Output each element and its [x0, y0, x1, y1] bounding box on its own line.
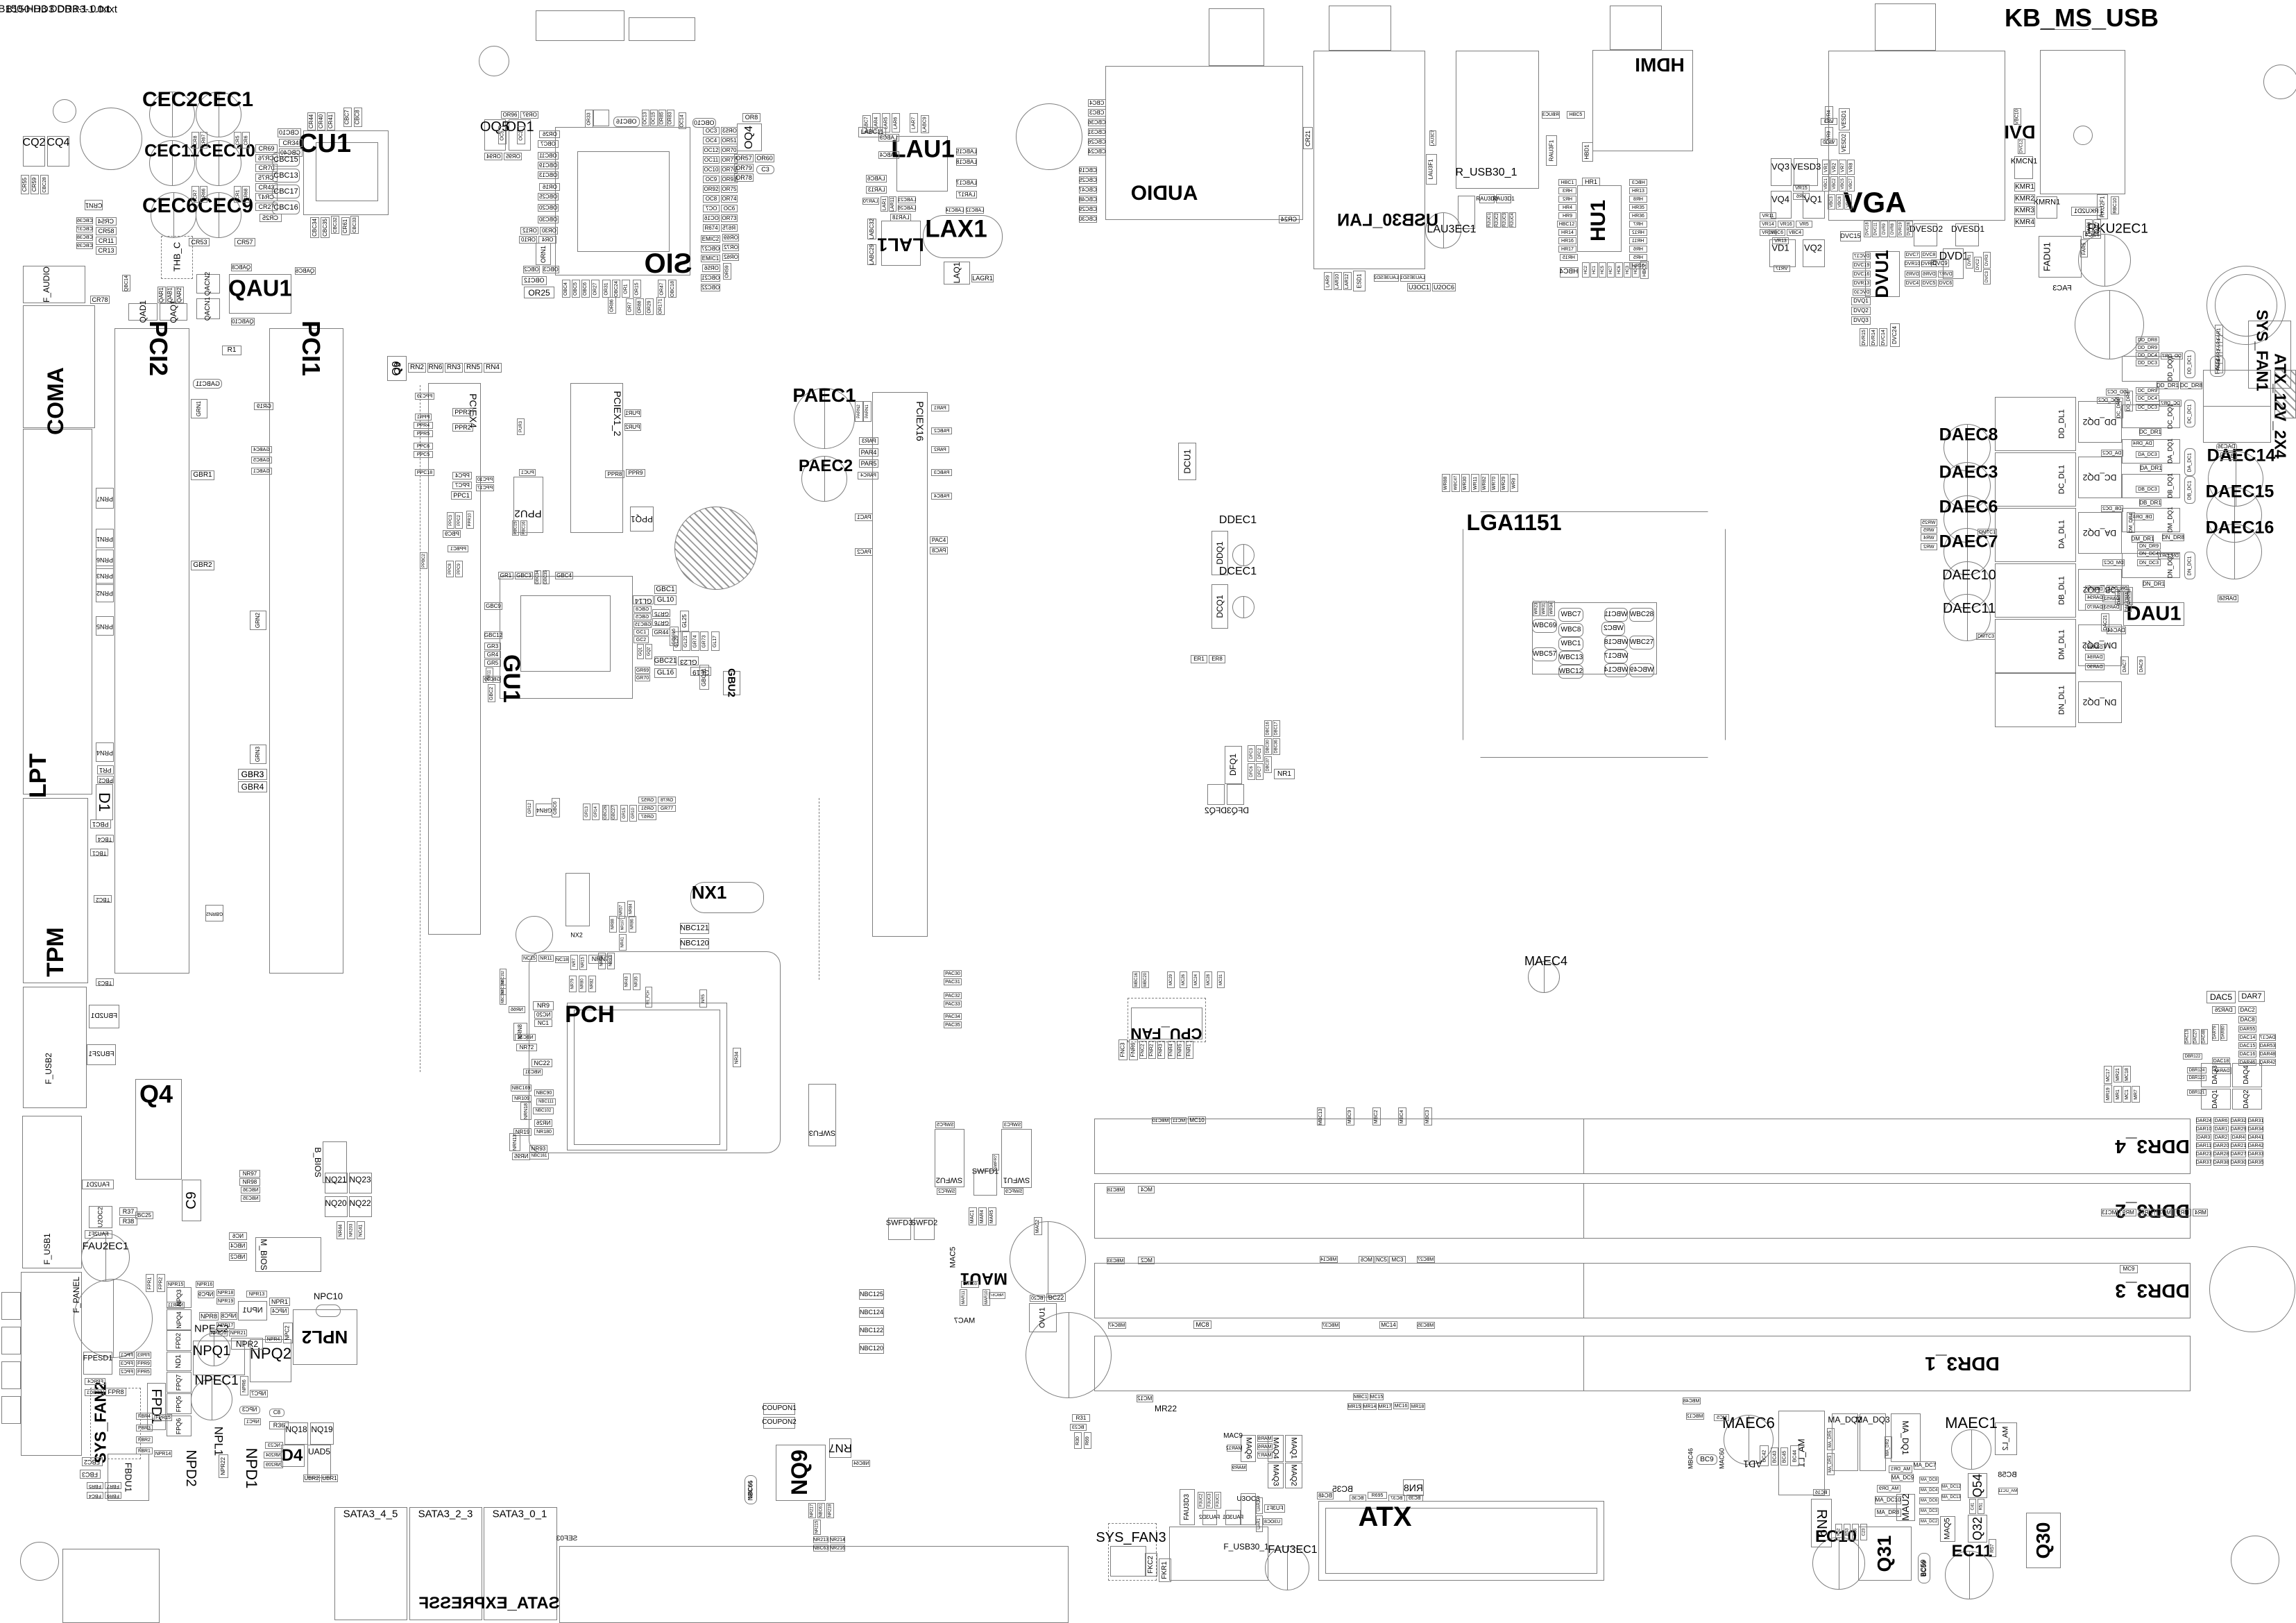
refdes-text: MBC18	[1107, 1188, 1123, 1193]
refdes-fnr2: FNR2	[1148, 1041, 1156, 1059]
refdes-text: C23	[1862, 1528, 1866, 1536]
label-npc10: NPC10	[314, 1292, 343, 1301]
refdes-dac15: DAC15	[2238, 1042, 2256, 1049]
refdes-mc9: MC9	[2120, 1265, 2138, 1273]
label-dc-dq1: DC_DQ1	[2168, 404, 2174, 430]
refdes-text: NPR17	[218, 1323, 234, 1328]
refdes-gbc2: GBC2	[488, 684, 495, 702]
refdes-text: OR97	[522, 112, 537, 118]
refdes-text: HR36	[1632, 214, 1644, 219]
capacitor-polarity-line	[2104, 235, 2105, 286]
label-f-audio: F_AUDIO	[42, 266, 51, 303]
refdes-or27: OR27	[591, 280, 599, 298]
refdes-text: NPR19	[218, 1299, 234, 1304]
refdes-cbc33: CBC33	[350, 216, 359, 234]
refdes-text: FNR2	[1150, 1044, 1155, 1056]
refdes-rn5: RN5	[464, 363, 482, 373]
refdes-text: LAGR1	[972, 275, 993, 282]
refdes-text: VESD2	[1842, 134, 1847, 152]
refdes-text: DVC4	[1906, 281, 1919, 286]
refdes-pur3: PUR3	[517, 418, 525, 435]
label-bc58: BC58	[1998, 1472, 2017, 1479]
refdes-npr21: NPR21	[229, 1329, 247, 1336]
refdes-cr67: CR67	[200, 132, 207, 148]
refdes-fpd2: FPD2	[167, 1330, 192, 1351]
refdes-cbc17: CBC17	[272, 185, 300, 198]
refdes-text: NBC34	[518, 1035, 534, 1040]
refdes-dar94: DAR94	[2085, 594, 2104, 601]
refdes-text: NPR4	[267, 1337, 280, 1342]
refdes-u3oc8: U3OC8	[1263, 1518, 1282, 1525]
refdes-hr35: HR35	[1629, 204, 1647, 211]
outline-box	[566, 873, 590, 926]
refdes-obc18: OBC18	[668, 280, 677, 298]
label-mr22: MR22	[1155, 1404, 1177, 1413]
refdes-text: DAC17	[2260, 1035, 2276, 1040]
refdes-text: BC16	[1815, 1490, 1828, 1495]
refdes-dbc16: DBC16	[1264, 720, 1272, 737]
refdes-obc27: OBC27	[701, 245, 720, 253]
refdes-prn7: PRN7	[96, 488, 114, 509]
refdes-text: R53	[1845, 1528, 1849, 1536]
refdes-text: DD_DR9	[2138, 346, 2157, 350]
refdes-vesd2: VESD2	[1839, 132, 1850, 154]
refdes-par2: PAR2	[931, 446, 949, 453]
refdes-nc20: NC20	[534, 1011, 552, 1019]
label-maec4: MAEC4	[1524, 955, 1567, 967]
refdes-text: HC2	[1584, 266, 1588, 274]
refdes-dac2: DAC2	[2238, 1006, 2256, 1014]
refdes-text: CR59	[32, 178, 37, 192]
outline-box	[23, 987, 87, 1108]
refdes-text: MC1	[2125, 1089, 2129, 1100]
refdes-text: OBC4	[564, 282, 569, 295]
refdes-qabc6: QABC6	[295, 267, 316, 275]
refdes-text: HBC5	[1570, 112, 1583, 117]
label-ovu1: OVU1	[1039, 1307, 1047, 1328]
refdes-text: DAR41	[2248, 1135, 2264, 1140]
refdes-nrn18: NRN18	[520, 1102, 532, 1120]
refdes-text: HR7	[1633, 222, 1643, 227]
mounting-hole-circle	[516, 916, 553, 953]
refdes-hr17: HR17	[1558, 246, 1576, 253]
refdes-vr14: VR14	[1760, 221, 1776, 228]
refdes-ppc10: PPC10	[476, 476, 494, 483]
refdes-text: CR6	[244, 135, 248, 145]
refdes-text: MBC2	[1375, 1110, 1379, 1123]
refdes-or92: OR92	[703, 185, 720, 193]
refdes-gbc31: GBC31	[699, 665, 709, 690]
refdes-r675: R675	[721, 224, 738, 232]
refdes-text: CR61	[343, 219, 348, 233]
label-dcq1: DCQ1	[1216, 595, 1224, 618]
refdes-text: NR218	[828, 1504, 833, 1518]
refdes-text: GR1	[500, 573, 511, 579]
refdes-mbc4: MBC4	[1398, 1107, 1406, 1125]
refdes-mbc35: MBC35	[1417, 1322, 1435, 1329]
refdes-text: DN_DR7	[2159, 554, 2179, 559]
refdes-text: PPR4	[417, 423, 430, 428]
refdes-nr15: NR15	[579, 955, 587, 970]
refdes-text: NPR1	[271, 1299, 288, 1305]
refdes-dar70: DAR70	[2085, 604, 2104, 611]
refdes-text: VR14	[1762, 222, 1774, 227]
refdes-dar93: DAR93	[2125, 587, 2133, 605]
refdes-text: NR180	[536, 1130, 552, 1135]
refdes-or171: OR171	[656, 297, 665, 315]
label-c9: C9	[185, 1191, 198, 1209]
label-mbc46: MBC46	[1688, 1448, 1694, 1469]
refdes-text: BC48	[1318, 1493, 1332, 1499]
label-m-bios: M_BIOS	[260, 1239, 268, 1270]
refdes-text: OC8	[706, 196, 717, 202]
refdes-gr14: GR14	[592, 804, 599, 820]
refdes-text: NR86	[631, 919, 635, 929]
refdes-text: MAR10	[985, 1291, 989, 1305]
refdes-nr217: NR217	[808, 1503, 816, 1518]
refdes-text: GL10	[657, 597, 674, 604]
refdes-dc-dr7: DC_DR7	[2159, 400, 2182, 407]
refdes-or10: OR10	[519, 236, 537, 244]
label-fau3d2: FAU3D2	[1199, 1515, 1220, 1520]
refdes-text: CRN1	[85, 202, 103, 208]
refdes-text: OR31	[604, 282, 609, 295]
label-dau1: DAU1	[2127, 604, 2182, 624]
refdes-text: WBC1	[1561, 640, 1581, 647]
refdes-text: FPR15	[155, 1416, 171, 1420]
refdes-text: VR10	[1823, 140, 1835, 145]
refdes-text: NR9	[537, 1003, 550, 1009]
refdes-ma-dr1: MA_DR1	[1889, 1465, 1912, 1473]
refdes-text: HBD1	[1585, 144, 1590, 159]
refdes-nbc34: NBC34	[515, 1034, 536, 1041]
refdes-dac18: DAC18	[2212, 1057, 2230, 1064]
refdes-text: DAR20	[2213, 1144, 2229, 1148]
refdes-nr5: NR5	[699, 989, 707, 1008]
label-hbc4: HBC4	[1560, 269, 1579, 275]
refdes-dvc15: DVC15	[1840, 231, 1861, 241]
refdes-text: DAR3	[2197, 1135, 2211, 1140]
refdes-text: FNR4	[1169, 1044, 1174, 1056]
label-vd1: VD1	[1771, 244, 1789, 253]
refdes-text: PRN2	[96, 590, 113, 596]
refdes-text: DAR52	[2104, 597, 2120, 602]
refdes-text: ESD1	[1357, 274, 1362, 289]
refdes-db-dc2: DB_DC2	[2101, 505, 2123, 512]
refdes-text: OR79	[735, 165, 752, 171]
refdes-text: OR27	[593, 282, 598, 295]
divider-line	[2203, 406, 2271, 407]
outline-box	[1207, 784, 1225, 805]
refdes-dar21: DAR21	[2231, 1142, 2246, 1149]
refdes-labc15: LABC15	[956, 148, 977, 155]
outline-box	[23, 266, 85, 303]
refdes-text: GR70	[636, 676, 649, 681]
refdes-text: DAR70	[2087, 605, 2103, 610]
refdes-fac4: FAC4	[2083, 231, 2101, 239]
refdes-text: DFC2	[1258, 748, 1262, 759]
refdes-cr58: CR58	[96, 227, 117, 235]
refdes-text: OC11	[704, 158, 718, 163]
label-vq3: VQ3	[1771, 162, 1789, 171]
refdes-fpq7: FPQ7	[167, 1372, 192, 1393]
refdes-oc5: OC5	[498, 126, 507, 144]
refdes-text: Q9	[392, 362, 402, 375]
refdes-text: NBC31	[525, 1070, 541, 1075]
refdes-nr109: NR109	[512, 1095, 532, 1102]
refdes-text: MC14	[1381, 1323, 1395, 1328]
refdes-text: FU3F1	[1266, 1506, 1283, 1511]
refdes-mc4: MC4	[1138, 1186, 1155, 1193]
refdes-mc13: MC13	[2101, 1209, 2118, 1216]
refdes-text: OR85	[660, 112, 665, 124]
label-sio: SIO	[645, 250, 692, 278]
label-fac3: FAC3	[2052, 285, 2072, 293]
refdes-text: PAC8	[932, 548, 946, 554]
refdes-text: LABC14	[946, 208, 964, 213]
refdes-text: PARN1	[865, 405, 869, 418]
refdes-hc7: HC7	[1607, 262, 1615, 278]
refdes-f3uc2: F3UC2	[1198, 1492, 1205, 1509]
label-nq20: NQ20	[325, 1199, 346, 1207]
refdes-pbc1: PBC1	[90, 819, 111, 829]
label-ma-dq3: MA_DQ3	[1855, 1416, 1889, 1424]
refdes-cr66: CR66	[200, 186, 207, 203]
refdes-text: PPR5	[417, 432, 430, 436]
refdes-text: OR62	[724, 255, 738, 260]
refdes-text: LAR13	[868, 187, 885, 193]
refdes-nr82: NR82	[588, 976, 596, 992]
refdes-db-dc3: DB_DC3	[2136, 486, 2159, 493]
refdes-cr40: CR40	[317, 112, 325, 130]
refdes-text: NBC161	[532, 1154, 547, 1158]
refdes-text: NR204	[266, 1453, 281, 1458]
refdes-text: NBC4	[230, 1243, 245, 1249]
refdes-wr31: WR31	[1540, 601, 1547, 616]
refdes-ppc3: PPC3	[447, 512, 454, 529]
refdes-text: DC_DR1	[2139, 430, 2161, 435]
refdes-dac44: DAC44	[2107, 627, 2126, 634]
refdes-text: OBC21	[701, 275, 720, 281]
refdes-dd-dr9: DD_DR9	[2136, 344, 2159, 351]
refdes-ma-dc9: MA_DC9	[1891, 1474, 1914, 1482]
label-daq4: DAQ4	[2243, 1065, 2250, 1084]
refdes-lar18: LAR18	[890, 214, 911, 221]
refdes-text: PPR10	[468, 513, 473, 526]
refdes-text: WR2	[1923, 545, 1934, 550]
refdes-gabc11: GABC11	[193, 379, 222, 389]
label-vesd3: VESD3	[1792, 162, 1821, 171]
refdes-dar4: DAR4	[2231, 1134, 2246, 1141]
refdes-rku2f1: RKU2F1	[2097, 194, 2108, 219]
refdes-text: OR73	[722, 216, 737, 221]
refdes-text: NPR21	[230, 1331, 246, 1336]
label-cu1: CU1	[298, 130, 351, 157]
refdes-cr53: CR53	[189, 238, 210, 246]
refdes-or7: OR7	[626, 298, 634, 315]
refdes-text: DAR10	[2196, 1127, 2212, 1132]
refdes-fpbc1: FPBC1	[85, 1389, 104, 1396]
label-dcec1: DCEC1	[1219, 566, 1257, 577]
refdes-text: CR24	[1281, 216, 1297, 223]
refdes-obc13: OBC13	[538, 171, 559, 179]
refdes-cbc35: CBC35	[321, 217, 330, 238]
label-qacn2: QACN2	[205, 272, 212, 296]
refdes-oc14: OC14	[679, 112, 686, 129]
label-maq1: MAQ1	[1290, 1437, 1298, 1459]
label-fau3d1: FAU3D1	[1223, 1515, 1243, 1520]
refdes-text: OC15	[652, 112, 656, 124]
refdes-text: PBC9	[445, 532, 459, 537]
refdes-swfc2: SWFC2	[937, 1188, 956, 1195]
refdes-bc43: BC43	[1771, 1447, 1778, 1465]
label-lga1151: LGA1151	[1467, 511, 1562, 534]
refdes-cbc34: CBC34	[310, 217, 319, 238]
refdes-fnr1: FNR1	[1186, 1041, 1193, 1059]
refdes-text: PBC2	[99, 777, 113, 783]
label-maq4: MAQ4	[1272, 1437, 1279, 1459]
refdes-nbc2: NBC2	[229, 1253, 247, 1261]
refdes-text: OR75	[722, 187, 737, 192]
refdes-kmr1: KMR1	[2014, 182, 2035, 192]
refdes-bc25: BC25	[135, 1212, 153, 1219]
refdes-dvr6: DVR6	[1921, 271, 1937, 278]
label-daec16: DAEC16	[2206, 520, 2274, 537]
refdes-text: NR57	[620, 905, 624, 915]
refdes-gbc27: GBC27	[611, 805, 618, 820]
refdes-parn1: PARN1	[863, 401, 871, 422]
refdes-ppc1: PPC1	[451, 491, 472, 500]
refdes-text: WR5	[1923, 528, 1934, 533]
refdes-dm-dr4: DM_DR4	[2127, 512, 2135, 533]
refdes-text: PAR3	[862, 439, 876, 444]
refdes-text: OR4	[542, 237, 553, 243]
refdes-text: F3UC3	[1207, 1493, 1211, 1506]
refdes-cr5: CR5	[234, 132, 241, 148]
refdes-text: OR29	[647, 300, 652, 313]
refdes-text: DFC7	[1258, 766, 1262, 777]
refdes-text: BC43	[1772, 1450, 1777, 1463]
refdes-text: HR3	[1563, 189, 1572, 194]
refdes-wr9: WR9	[1510, 474, 1518, 492]
refdes-text: TBC1	[92, 850, 106, 856]
refdes-obc24: OBC24	[612, 280, 620, 298]
refdes-hr13: HR13	[1629, 187, 1647, 194]
refdes-fbr5: FBR5	[87, 1482, 103, 1489]
refdes-text: NR216	[830, 1546, 845, 1551]
refdes-text: PPC2	[457, 515, 461, 526]
refdes-text: DAR6	[2215, 1119, 2228, 1123]
refdes-text: DBR122	[2185, 1055, 2201, 1059]
refdes-nr204: NR204	[264, 1452, 283, 1459]
refdes-text: MC8	[1196, 1322, 1209, 1328]
refdes-pur1: PUR1	[624, 409, 641, 417]
refdes-text: PRN6	[96, 556, 113, 563]
refdes-text: OC16	[704, 216, 719, 221]
refdes-parc4: PARC4	[858, 472, 878, 479]
refdes-text: WR29	[1502, 476, 1507, 489]
refdes-npr17: NPR17	[216, 1322, 235, 1329]
refdes-pac31: PAC31	[944, 978, 962, 985]
refdes-nr72: NR72	[516, 1044, 537, 1051]
refdes-text: NPR16	[197, 1282, 213, 1287]
refdes-text: OC6	[724, 206, 735, 212]
refdes-gr69: GR69	[635, 667, 650, 674]
refdes-hr3: HR3	[1558, 187, 1576, 194]
refdes-mc1: MC1	[2123, 1086, 2131, 1103]
refdes-text: OBC6	[584, 282, 588, 295]
refdes-gl21: GL21	[682, 631, 690, 651]
label-rn8: RN8	[1404, 1483, 1423, 1493]
refdes-gr44: GR44	[652, 629, 670, 636]
label-maq5: MAQ5	[1944, 1518, 1952, 1539]
label-lpt: LPT	[26, 754, 50, 798]
refdes-dbr121: DBR121	[2187, 1089, 2206, 1096]
refdes-text: GR15	[622, 808, 627, 819]
refdes-text: MAR11	[962, 1291, 966, 1305]
refdes-text: OR69	[724, 235, 738, 241]
refdes-gbr4: GBR4	[238, 781, 267, 792]
label-npd1: NPD1	[244, 1448, 259, 1489]
refdes-grn1: GRN1	[191, 399, 207, 418]
refdes-bc45: BC45	[1780, 1447, 1788, 1465]
refdes-or73: OR73	[721, 214, 738, 222]
refdes-text: HR4	[1563, 205, 1572, 210]
refdes-db-dc1: DB_DC1	[2184, 476, 2195, 504]
refdes-dac17: DAC17	[2259, 1034, 2276, 1041]
divider-line	[1583, 1183, 1584, 1239]
refdes-mbc3: MBC3	[1424, 1107, 1432, 1125]
refdes-dar33: DAR33	[2248, 1150, 2263, 1157]
refdes-text: OC12	[704, 148, 719, 153]
label-dc-dl1: DC_DL1	[2059, 465, 2066, 494]
refdes-text: VR8	[1848, 162, 1853, 172]
refdes-text: DVC24	[1892, 326, 1898, 344]
refdes-pabc2: PABC2	[931, 427, 952, 434]
refdes-wbc47: WBC47	[1452, 474, 1460, 492]
refdes-text: GABC4	[253, 448, 270, 452]
capacitor-polarity-line	[1069, 1313, 1069, 1397]
refdes-bc23: BC23	[1070, 1424, 1087, 1431]
refdes-r36: R36	[269, 1421, 289, 1429]
label-daq2: DAQ2	[2243, 1089, 2250, 1108]
refdes-text: FPQ7	[176, 1374, 182, 1391]
refdes-dvr13: DVR13	[1853, 280, 1871, 287]
label-kmrn1: KMRN1	[2034, 199, 2061, 207]
label-fau3d3: FAU3D3	[1184, 1494, 1191, 1520]
refdes-wr4: WR4	[1921, 534, 1937, 541]
refdes-text: NR41	[621, 937, 625, 947]
refdes-text: NBC169	[512, 1086, 530, 1091]
refdes-dmtc1: DMTC1	[1978, 529, 1997, 536]
refdes-oc13: OC13	[642, 110, 649, 126]
refdes-text: HR2	[1563, 197, 1572, 202]
mounting-hole-circle	[53, 99, 76, 123]
refdes-text: MC2	[1141, 1258, 1153, 1264]
refdes-text: NPR2	[236, 1340, 258, 1348]
refdes-obc25: OBC25	[538, 193, 559, 201]
refdes-u2oc6: U2OC6	[1432, 283, 1456, 291]
refdes-text: FBC3	[82, 1471, 98, 1477]
label-nq9: NQ9	[788, 1450, 810, 1495]
refdes-obc11: OBC11	[538, 152, 559, 160]
refdes-dc-dc1: DC_DC1	[2184, 400, 2195, 427]
refdes-text: FNR3	[1159, 1044, 1164, 1056]
label-vq2: VQ2	[1804, 244, 1822, 253]
refdes-text: MBC14	[1320, 1257, 1336, 1262]
refdes-text: VBC2	[1832, 178, 1837, 189]
refdes-text: PRN4	[96, 749, 113, 756]
